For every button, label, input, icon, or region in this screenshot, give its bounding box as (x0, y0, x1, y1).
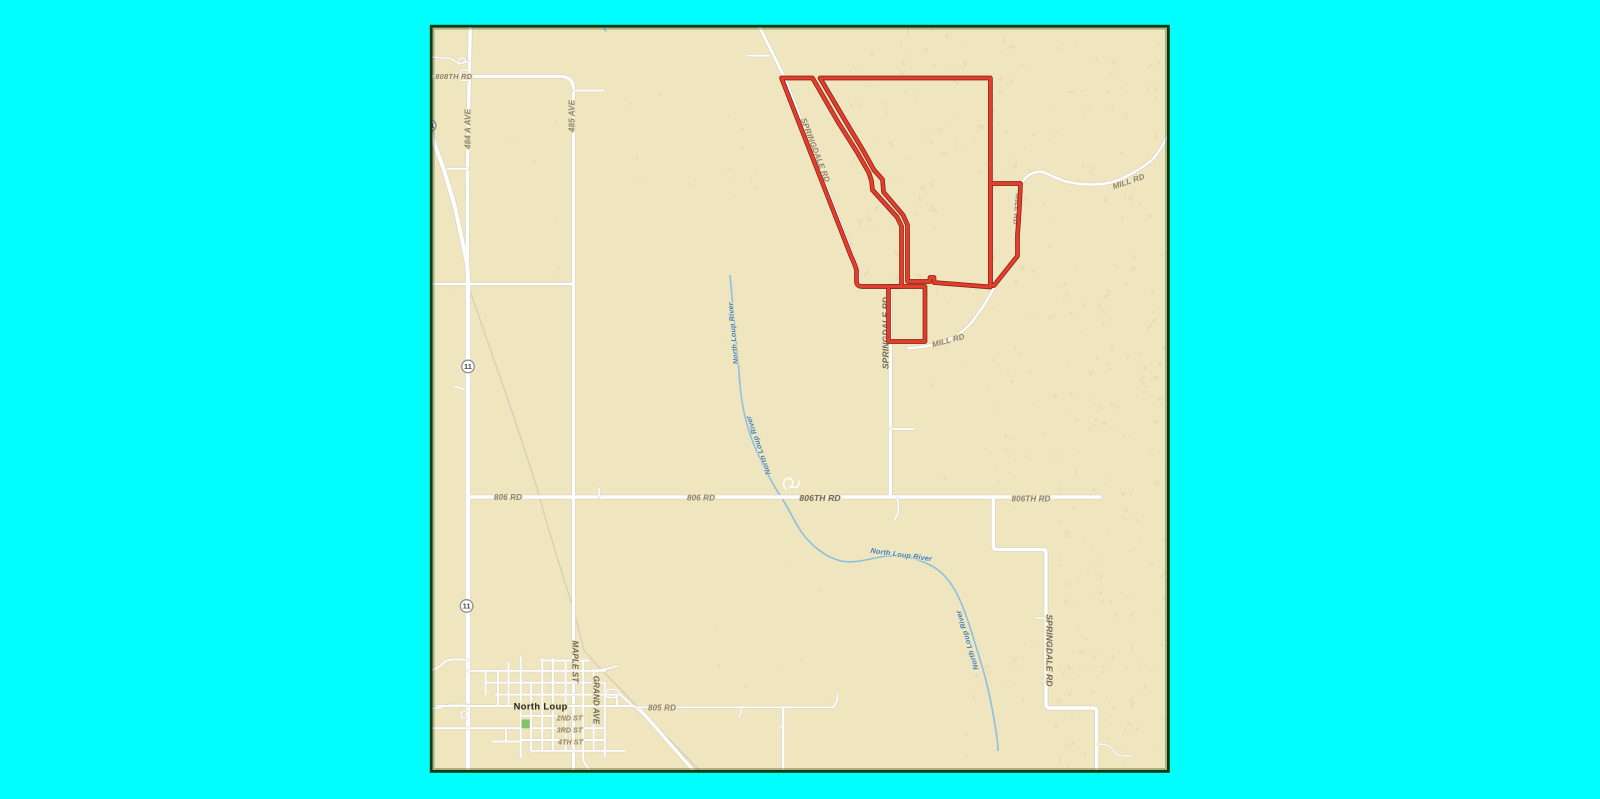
svg-text:806TH RD: 806TH RD (1012, 495, 1051, 504)
svg-text:4TH ST: 4TH ST (557, 739, 584, 746)
svg-text:11: 11 (464, 362, 472, 371)
svg-text:North Loup: North Loup (514, 702, 568, 712)
svg-text:2ND ST: 2ND ST (556, 715, 583, 722)
svg-text:806 RD: 806 RD (494, 493, 522, 502)
svg-text:808TH RD: 808TH RD (435, 72, 472, 81)
svg-text:SPRINGDALE RD: SPRINGDALE RD (1044, 614, 1054, 686)
svg-text:GRAND AVE: GRAND AVE (591, 676, 600, 725)
svg-text:MAPLE ST: MAPLE ST (570, 641, 579, 684)
svg-text:484 A AVE: 484 A AVE (464, 109, 473, 150)
svg-text:806 RD: 806 RD (687, 494, 715, 503)
svg-text:806TH RD: 806TH RD (799, 493, 840, 503)
svg-text:485 AVE: 485 AVE (567, 99, 576, 133)
svg-text:3RD ST: 3RD ST (557, 727, 583, 734)
svg-text:11: 11 (463, 602, 471, 611)
svg-text:805 RD: 805 RD (648, 704, 676, 713)
